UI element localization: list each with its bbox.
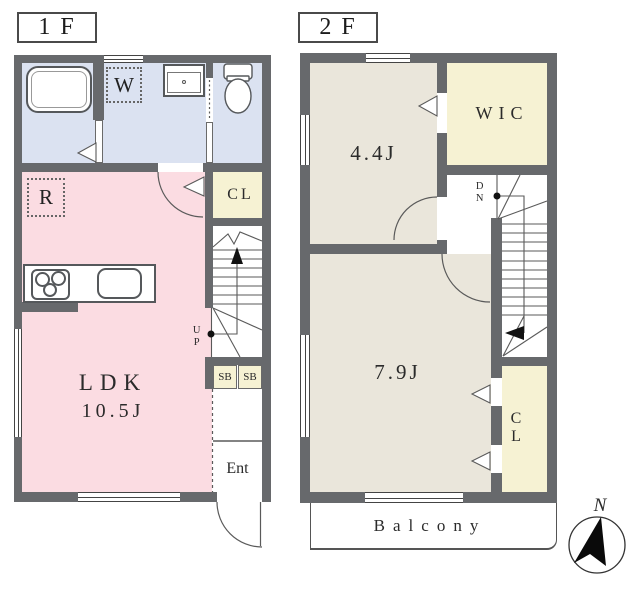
wall <box>491 406 502 445</box>
up-arrowhead <box>231 247 243 264</box>
washer-label: W <box>114 73 134 98</box>
wall-stair-side <box>205 226 213 308</box>
wall <box>205 172 213 218</box>
wall <box>437 165 547 175</box>
entrance-label: Ent <box>213 459 262 479</box>
floor-plan-canvas: 1F <box>0 0 640 591</box>
toilet-door-upper <box>206 78 213 122</box>
wall <box>22 163 158 172</box>
winder <box>503 316 524 356</box>
entrance-door-arc <box>217 502 262 547</box>
winder <box>498 175 520 219</box>
up-route <box>214 263 237 334</box>
wall <box>205 218 262 226</box>
wall-stair-side-2f <box>491 218 502 378</box>
room-closet-2f <box>502 366 547 492</box>
door-opening-entrance <box>217 492 262 502</box>
stairs-2f <box>497 175 547 356</box>
ldk-area: 10.5J <box>40 399 186 423</box>
window-balcony <box>365 492 463 503</box>
bath-sliding-door <box>95 120 103 163</box>
washer-box: W <box>106 67 142 103</box>
compass-icon <box>569 517 625 573</box>
ldk-name: LDK <box>40 371 186 395</box>
wall <box>205 365 213 389</box>
wall-bath-partition <box>93 63 104 120</box>
dn-route <box>500 196 524 333</box>
stairs-dn-label: DN <box>477 181 482 205</box>
fridge-label: R <box>39 185 53 210</box>
room-ldk <box>22 172 212 492</box>
burner <box>43 283 57 297</box>
window-top-2f <box>366 53 410 63</box>
door-opening-ldk <box>158 163 203 172</box>
window-left-1f <box>14 329 22 437</box>
wall <box>310 244 442 254</box>
winder <box>503 327 547 356</box>
wall <box>300 53 557 63</box>
wall <box>262 55 271 502</box>
wall <box>491 357 547 366</box>
winder <box>213 308 262 330</box>
wall-toilet-stub <box>206 63 213 78</box>
stairs-up-label: UP <box>194 325 199 349</box>
wall <box>203 163 262 172</box>
stairs-1f <box>212 232 263 357</box>
room-label-7-9j: 7.9J <box>330 359 465 385</box>
window-ldk-south <box>78 492 180 502</box>
window-7-9j <box>300 335 310 437</box>
window-4-4j <box>300 115 310 165</box>
floor-label-1f: 1F <box>17 12 97 43</box>
dn-arrowhead <box>505 326 524 340</box>
closet-label-1f: CL <box>213 172 265 218</box>
toilet-door <box>206 122 213 163</box>
kitchen-sink <box>97 268 142 299</box>
dn-route-dot <box>494 193 501 200</box>
wic-label: WIC <box>447 100 552 126</box>
shoebox-label-1: SB <box>213 365 237 389</box>
wall <box>205 357 262 365</box>
winder <box>498 201 547 219</box>
window-top-1f <box>104 55 143 63</box>
wall <box>437 63 447 93</box>
balcony-label: Balcony <box>330 512 530 540</box>
shoebox-label-2: SB <box>238 365 262 389</box>
floor-label-2f: 2F <box>298 12 378 43</box>
kitchen-counter-base <box>22 302 78 312</box>
fridge-box: R <box>27 178 65 217</box>
wall <box>491 473 502 492</box>
winder <box>213 308 240 357</box>
vanity-knob <box>182 80 186 84</box>
room-label-4-4j: 4.4J <box>315 140 432 166</box>
closet-label-2f: CL <box>512 410 520 447</box>
compass-north-label: N <box>586 495 614 517</box>
stair-break-line <box>213 232 262 247</box>
bathtub-inner <box>31 71 87 108</box>
